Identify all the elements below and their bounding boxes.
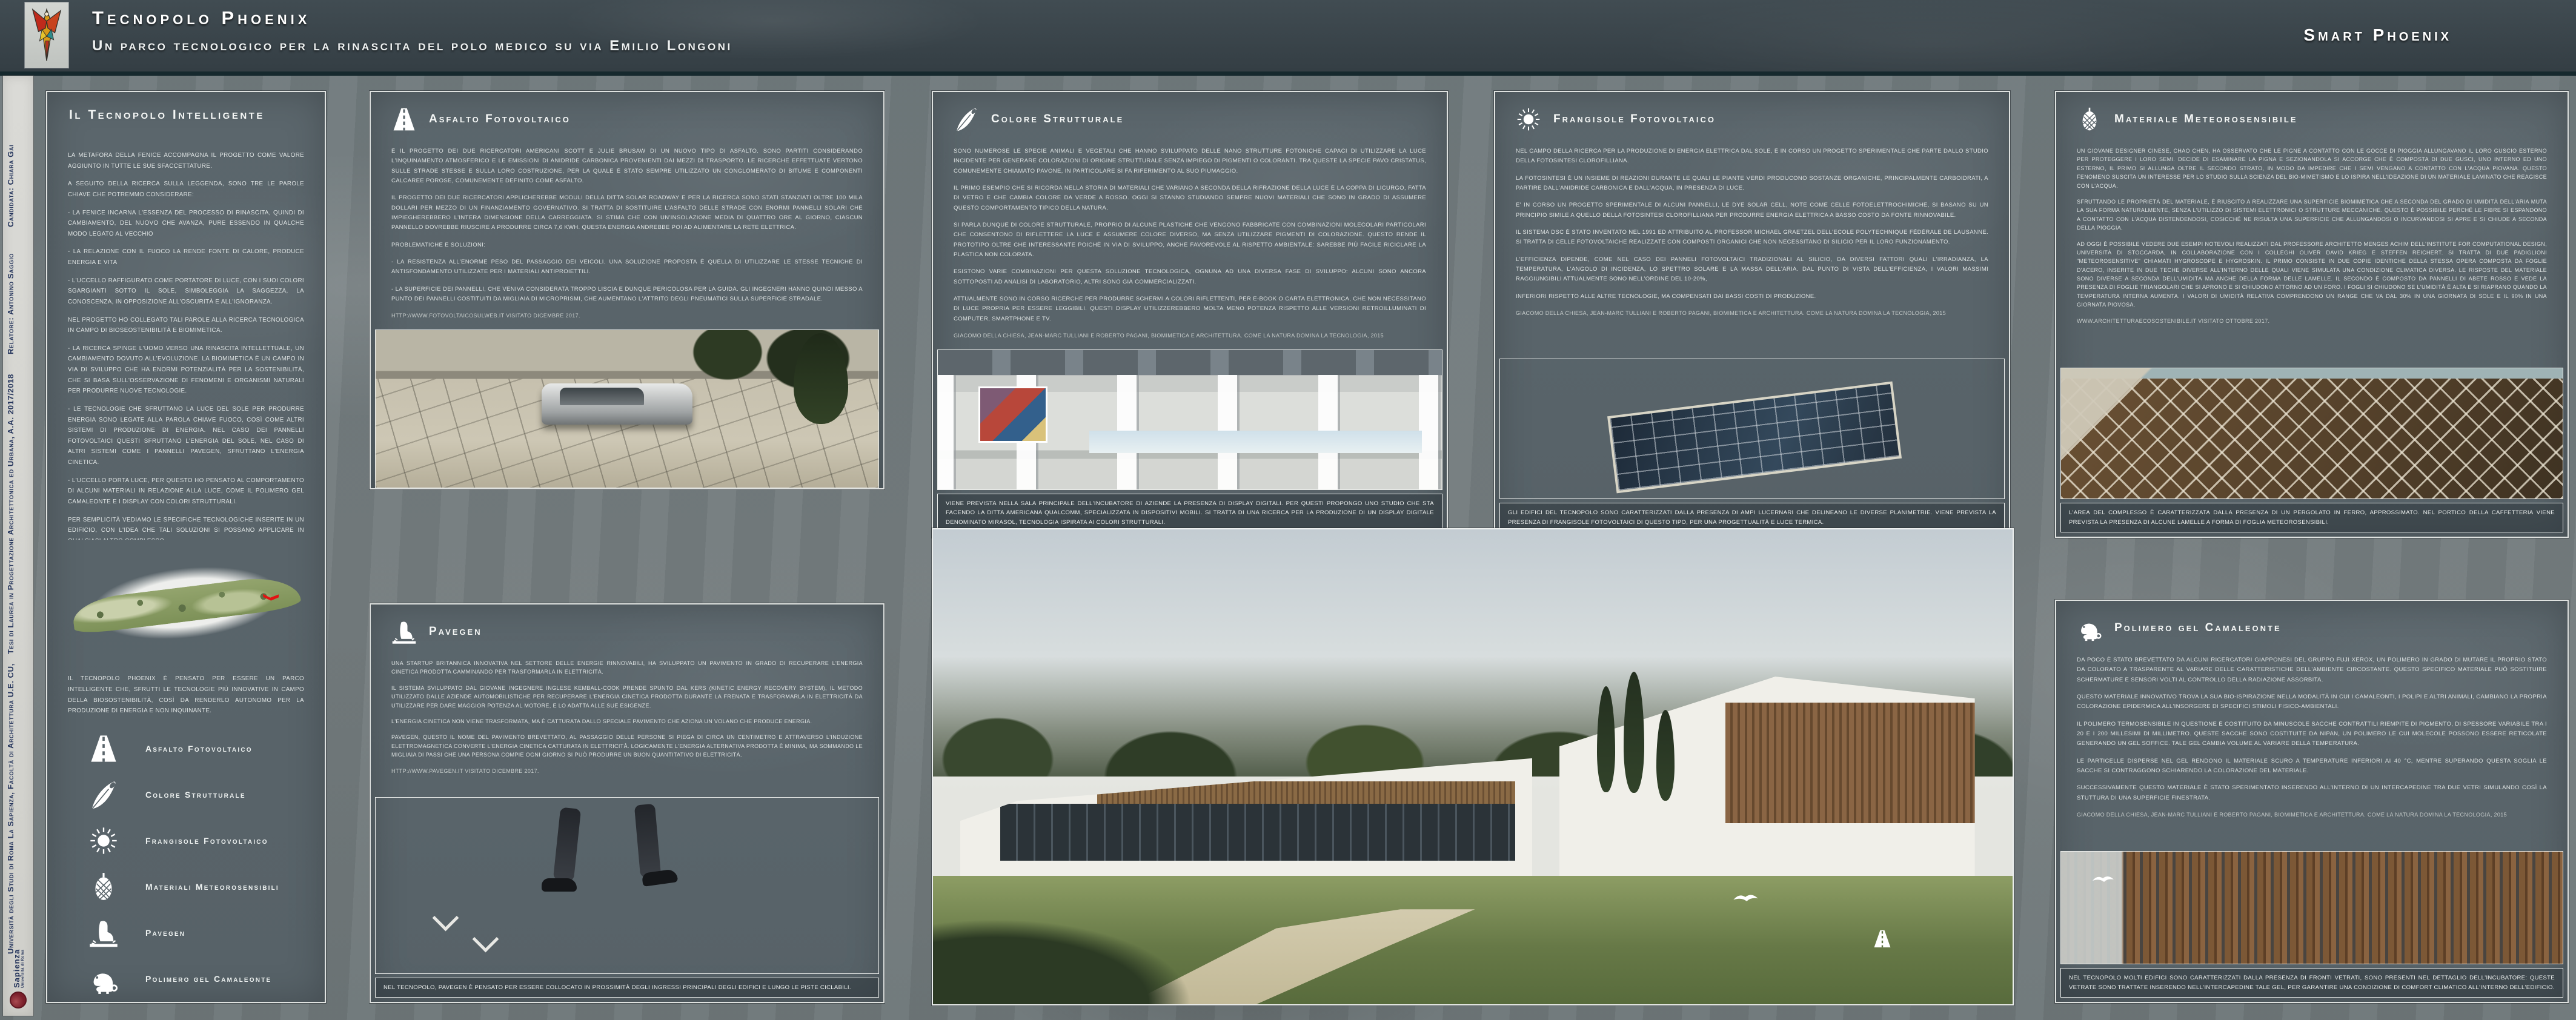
paragraph: Il sistema DSC è stato inventato nel 199… xyxy=(1516,228,1988,248)
panel-text: Nel campo della ricerca per la produzion… xyxy=(1495,137,2009,325)
paragraph: - La Fenice incarna l'essenza del proces… xyxy=(68,208,304,240)
footstep-icon xyxy=(86,916,121,950)
technology-legend: Asfalto Fotovoltaico Colore Strutturale … xyxy=(86,726,325,1002)
board-title: Tecnopolo Phoenix xyxy=(92,7,310,29)
university-line: Università degli Studi di Roma La Sapien… xyxy=(5,654,18,954)
panel-title: Colore Strutturale xyxy=(991,113,1124,126)
paragraph: Il primo esempio che si ricorda nella st… xyxy=(954,184,1426,213)
paragraph: A seguito della ricerca sulla leggenda, … xyxy=(68,179,304,200)
panel-frangisole-fotovoltaico: Frangisole Fotovoltaico Nel campo della … xyxy=(1494,91,2010,538)
thesis-line: Tesi di Laurea in Progettazione Architet… xyxy=(5,354,18,654)
skylight-graphic xyxy=(1607,381,1902,492)
window-graphic xyxy=(1089,431,1422,453)
panel-text: È il progetto dei due ricercatori americ… xyxy=(371,137,883,328)
panel-colore-strutturale: Colore Strutturale Sono numerose le spec… xyxy=(932,91,1448,538)
panel-caption: Nel Tecnopolo, Pavegen è pensato per ess… xyxy=(375,978,879,998)
panel-caption: Nel Tecnopolo molti edifici sono caratte… xyxy=(2060,968,2563,998)
paragraph: - La resistenza all'enorme peso del pass… xyxy=(391,257,863,277)
paragraph: Si parla dunque di Colore Strutturale, p… xyxy=(954,220,1426,260)
sapienza-logo: Sapienza Università di Roma xyxy=(3,926,33,1011)
paragraph: - La ricerca spinge l'uomo verso una rin… xyxy=(68,343,304,397)
road-icon xyxy=(86,732,121,766)
paragraph: Il polimero termosensibile in questione … xyxy=(2077,720,2547,749)
pedestrian-leg-graphic xyxy=(553,807,581,882)
legend-item: Colore Strutturale xyxy=(86,772,325,818)
legend-item: Asfalto Fotovoltaico xyxy=(86,726,325,772)
credits-sidebar: Relatore: Antonino Saggio Candidata: Chi… xyxy=(3,76,33,1016)
paragraph: - Le tecnologie che sfruttano la luce de… xyxy=(68,404,304,468)
header-band: Tecnopolo Phoenix Un parco tecnologico p… xyxy=(0,0,2576,76)
paragraph: Nel progetto ho collegato tali parole al… xyxy=(68,315,304,336)
paragraph: Una startUp britannica innovativa nel se… xyxy=(391,659,863,677)
glazing-detail-photo xyxy=(2060,851,2563,964)
bird-marker-icon xyxy=(2091,872,2116,884)
candidata-line: Candidata: Chiara Gai xyxy=(5,100,18,227)
panel-materiale-meteorosensibile: Materiale Meteorosensibile Un giovane de… xyxy=(2055,91,2569,538)
intro-text: La metafora della Fenice accompagna il p… xyxy=(47,141,325,540)
sapienza-emblem-icon xyxy=(10,992,27,1008)
feather-icon xyxy=(952,105,980,133)
phoenix-logo xyxy=(24,2,69,68)
paragraph: L'energia cinetica non viene trasformata… xyxy=(391,717,863,726)
panel-title: Asfalto Fotovoltaico xyxy=(429,113,571,126)
intro-title: Il Tecnopolo Intelligente xyxy=(69,108,303,122)
paragraph: Problematiche e soluzioni: xyxy=(391,240,863,250)
paragraph: Le particelle disperse nel gel rendono i… xyxy=(2077,757,2547,777)
sapienza-logo-text: Sapienza xyxy=(12,949,21,988)
panel-pavegen: Pavegen Una startUp britannica innovativ… xyxy=(370,603,885,1003)
sapienza-logo-subtext: Università di Roma xyxy=(21,949,25,988)
panel-caption: Viene prevista nella sala principale del… xyxy=(937,494,1442,532)
panel-caption: L'area del complesso è caratterizzata da… xyxy=(2060,503,2563,532)
source-reference: http://www.fotovoltaicosulweb.it visitat… xyxy=(391,311,863,320)
paragraph: È il progetto dei due ricercatori americ… xyxy=(391,147,863,186)
panel-text: Sono numerose le specie animali e vegeta… xyxy=(933,137,1447,348)
masterplan-map xyxy=(53,546,319,660)
paragraph: - L'uccello raffigurato come portatore d… xyxy=(68,276,304,308)
paragraph: inferiori rispetto alle altre tecnologie… xyxy=(1516,292,1988,302)
shoe-graphic xyxy=(542,878,577,892)
panel-text: Da poco è stato brevettato da alcuni ric… xyxy=(2056,646,2568,827)
phoenix-logo-icon xyxy=(29,5,64,65)
intro-closing: Il Tecnopolo Phoenix è pensato per esser… xyxy=(68,674,304,717)
chameleon-icon xyxy=(86,962,121,996)
paragraph: - La superficie dei pannelli, che veniva… xyxy=(391,285,863,305)
source-reference: www.architetturaecosostenibile.it visita… xyxy=(2077,317,2547,325)
paragraph: La fotosintesi è un insieme di reazioni … xyxy=(1516,174,1988,194)
source-reference: Giacomo della Chiesa, Jean-Marc Tulliani… xyxy=(1516,309,1988,318)
chameleon-icon xyxy=(2076,614,2103,642)
bush-graphic xyxy=(932,919,1192,1005)
roof-render-photo xyxy=(1499,359,2005,499)
legend-item: Materiali Meteorosensibili xyxy=(86,864,325,910)
tree-graphic xyxy=(794,333,848,424)
paragraph: Attualmente sono in corso ricerche per p… xyxy=(954,294,1426,324)
paragraph: E' in corso un progetto sperimentale di … xyxy=(1516,200,1988,220)
panel-title: Polimero gel Camaleonte xyxy=(2114,621,2282,635)
panel-asfalto-fotovoltaico: Asfalto Fotovoltaico È il progetto dei d… xyxy=(370,91,885,489)
panel-text: Una startUp britannica innovativa nel se… xyxy=(371,649,883,783)
relatore-line: Relatore: Antonino Saggio xyxy=(5,227,18,354)
sun-icon xyxy=(1515,105,1542,133)
paragraph: Questo materiale innovativo trova la sua… xyxy=(2077,692,2547,712)
digital-display-graphic xyxy=(978,386,1047,443)
sun-icon xyxy=(86,824,121,858)
paragraph: Nel campo della ricerca per la produzion… xyxy=(1516,147,1988,167)
footstep-icon xyxy=(390,618,418,646)
bird-marker-icon xyxy=(1732,890,1760,904)
paragraph: - L'uccello porta luce, per questo ho pe… xyxy=(68,475,304,508)
ceiling-graphic xyxy=(938,350,1442,375)
pedestrian-leg-graphic xyxy=(634,804,660,878)
panel-title: Frangisole Fotovoltaico xyxy=(1553,113,1716,126)
university-credits: Università degli Studi di Roma La Sapien… xyxy=(5,354,18,954)
road-marker-icon xyxy=(1872,929,1893,949)
paragraph: Sfruttando le proprietà del materiale, è… xyxy=(2077,197,2547,233)
panel-title: Pavegen xyxy=(429,625,482,638)
paragraph: Successivamente questo materiale è stato… xyxy=(2077,783,2547,803)
supervisor-credits: Relatore: Antonino Saggio Candidata: Chi… xyxy=(5,100,18,354)
paragraph: Esistono varie combinazioni per questa s… xyxy=(954,267,1426,287)
paragraph: Ad oggi è possibile vedere due esempi no… xyxy=(2077,240,2547,310)
board-right-title: Smart Phoenix xyxy=(2303,25,2452,45)
paragraph: Pavegen, questo il nome del pavimento br… xyxy=(391,733,863,759)
floor-arrow-graphic xyxy=(473,926,499,953)
paragraph: Un giovane designer cinese, Chao Chen, h… xyxy=(2077,147,2547,190)
paragraph: Il progetto dei due ricercatori appliche… xyxy=(391,193,863,233)
feather-icon xyxy=(86,778,121,812)
panel-text: Un giovane designer cinese, Chao Chen, h… xyxy=(2056,137,2568,333)
legend-item: Pavegen xyxy=(86,910,325,956)
source-reference: Giacomo della Chiesa, Jean-Marc Tulliani… xyxy=(954,331,1426,340)
paragraph: Da poco è stato brevettato da alcuni ric… xyxy=(2077,655,2547,685)
facade-detail-photo xyxy=(2060,368,2563,499)
interior-render-photo xyxy=(937,349,1442,490)
panel-title: Materiale Meteorosensibile xyxy=(2114,113,2298,126)
legend-item: Polimero gel Camaleonte xyxy=(86,956,325,1002)
board-subtitle: Un parco tecnologico per la rinascita de… xyxy=(92,38,732,55)
source-reference: http://www.pavegen.it visitato dicembre … xyxy=(391,767,863,775)
floor-arrow-graphic xyxy=(432,905,459,932)
central-masterplan-render xyxy=(932,528,2014,1005)
pinecone-icon xyxy=(86,870,121,904)
panel-intro: Il Tecnopolo Intelligente La metafora de… xyxy=(46,91,326,1003)
paragraph: Sono numerose le specie animali e vegeta… xyxy=(954,147,1426,176)
car-graphic xyxy=(542,383,692,425)
paragraph: La metafora della Fenice accompagna il p… xyxy=(68,150,304,171)
source-reference: Giacomo della Chiesa, Jean-Marc Tulliani… xyxy=(2077,810,2547,820)
legend-item: Frangisole Fotovoltaico xyxy=(86,818,325,864)
pinecone-icon xyxy=(2076,105,2103,133)
road-icon xyxy=(390,105,418,133)
presentation-board: Tecnopolo Phoenix Un parco tecnologico p… xyxy=(0,0,2576,1020)
paragraph: L'efficienza dipende, come nel caso dei … xyxy=(1516,255,1988,285)
paragraph: Per semplicità vediamo le specifiche tec… xyxy=(68,515,304,540)
paragraph: - La relazione con il fuoco la rende fon… xyxy=(68,247,304,268)
paragraph: Il sistema sviluppato dal giovane ingegn… xyxy=(391,684,863,710)
asfalto-render-photo xyxy=(375,330,879,488)
pavegen-floor-photo xyxy=(375,797,879,974)
panel-polimero-gel-camaleonte: Polimero gel Camaleonte Da poco è stato … xyxy=(2055,600,2569,1003)
